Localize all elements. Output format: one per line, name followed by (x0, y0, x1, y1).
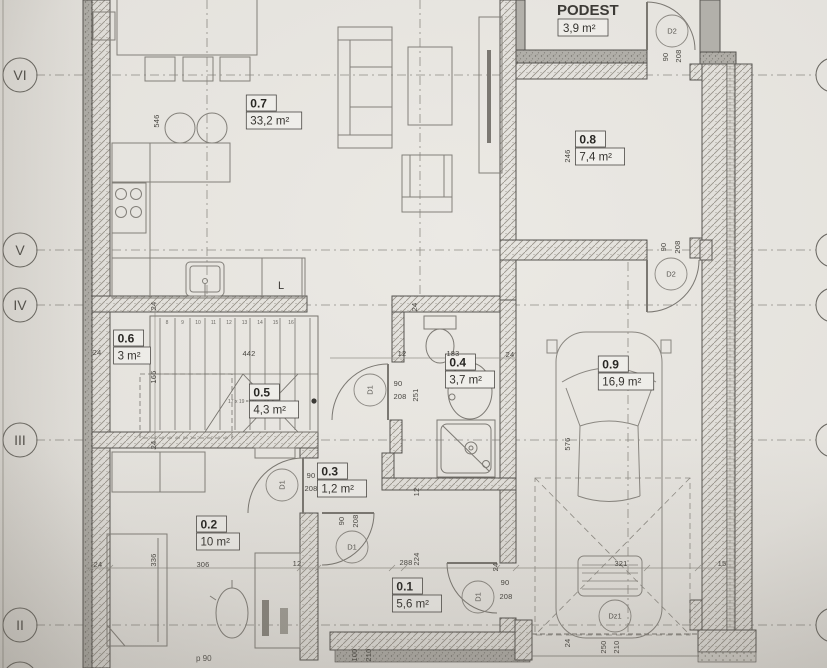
photo-shade-bottom (0, 430, 827, 668)
floorplan-svg: PODEST 3,9 m² 17 x 19 = 29 L p 90 0.733,… (0, 0, 827, 668)
floorplan-photo: PODEST 3,9 m² 17 x 19 = 29 L p 90 0.733,… (0, 0, 827, 668)
